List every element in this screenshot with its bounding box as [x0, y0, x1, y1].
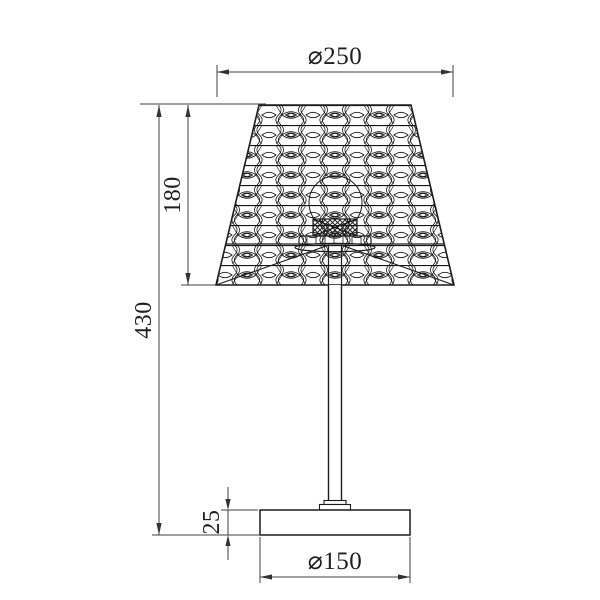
lamp-base	[260, 510, 410, 535]
dim-label-base-diameter: ⌀150	[308, 548, 363, 575]
dim-label-base-height: 25	[199, 510, 225, 535]
stem-flange-upper	[324, 501, 346, 505]
dim-shade-diameter: ⌀250	[217, 43, 453, 97]
dim-label-total-height: 430	[131, 301, 157, 339]
dim-shade-height: 180	[160, 105, 216, 285]
lamp-dimension-drawing: ⌀250 430 180 25 ⌀150	[0, 0, 600, 600]
dim-base-diameter: ⌀150	[260, 537, 410, 583]
dim-label-shade-height: 180	[160, 176, 186, 214]
dim-total-height: 430	[131, 105, 260, 535]
dim-base-height: 25	[199, 487, 258, 560]
drawing-svg: ⌀250 430 180 25 ⌀150	[0, 0, 600, 600]
stem-flange-lower	[320, 505, 351, 511]
lamp-shade	[216, 105, 454, 285]
dim-label-shade-diameter: ⌀250	[308, 43, 363, 70]
